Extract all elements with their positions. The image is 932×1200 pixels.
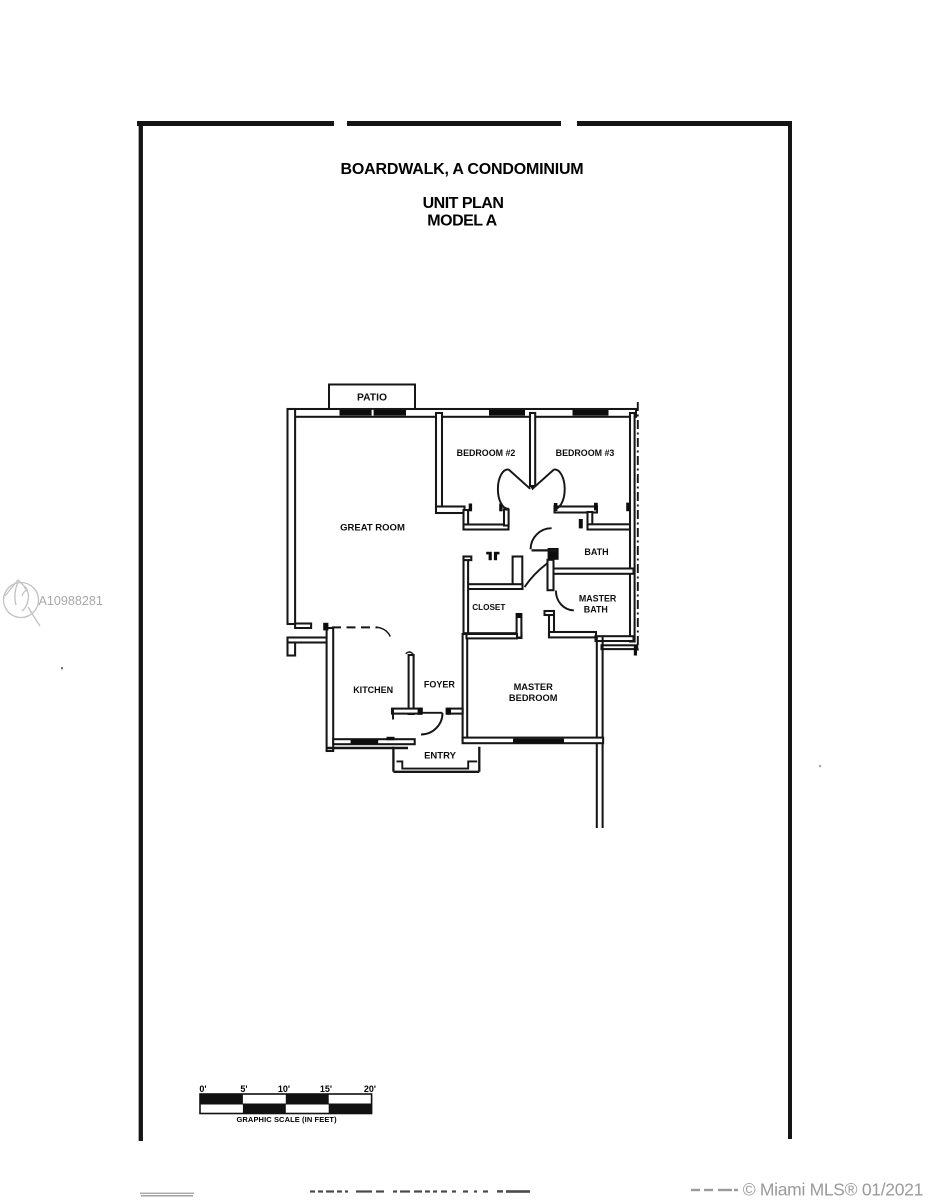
svg-text:A10988281: A10988281 [39,594,103,608]
svg-text:GRAPHIC SCALE (IN FEET): GRAPHIC SCALE (IN FEET) [236,1115,337,1124]
svg-text:BEDROOM: BEDROOM [509,693,558,703]
svg-text:© Miami MLS® 01/2021: © Miami MLS® 01/2021 [743,1180,923,1200]
svg-text:BEDROOM #3: BEDROOM #3 [556,448,615,458]
svg-text:CLOSET: CLOSET [472,603,505,612]
svg-text:MASTER: MASTER [514,682,554,692]
svg-text:BATH: BATH [584,604,608,614]
svg-text:10': 10' [278,1084,290,1094]
svg-text:BEDROOM #2: BEDROOM #2 [457,448,516,458]
svg-text:UNIT PLAN: UNIT PLAN [423,195,504,212]
svg-text:BOARDWALK, A CONDOMINIUM: BOARDWALK, A CONDOMINIUM [341,161,584,178]
svg-text:FOYER: FOYER [424,680,456,690]
svg-text:MODEL A: MODEL A [427,213,497,230]
svg-text:KITCHEN: KITCHEN [353,685,393,695]
svg-text:BATH: BATH [584,547,608,557]
svg-text:15': 15' [320,1084,332,1094]
svg-text:GREAT ROOM: GREAT ROOM [340,523,405,534]
svg-text:20': 20' [364,1084,376,1094]
svg-text:ENTRY: ENTRY [424,751,457,762]
svg-text:0': 0' [199,1084,206,1094]
svg-text:5': 5' [240,1084,247,1094]
svg-text:PATIO: PATIO [357,393,387,404]
svg-text:MASTER: MASTER [579,593,617,603]
